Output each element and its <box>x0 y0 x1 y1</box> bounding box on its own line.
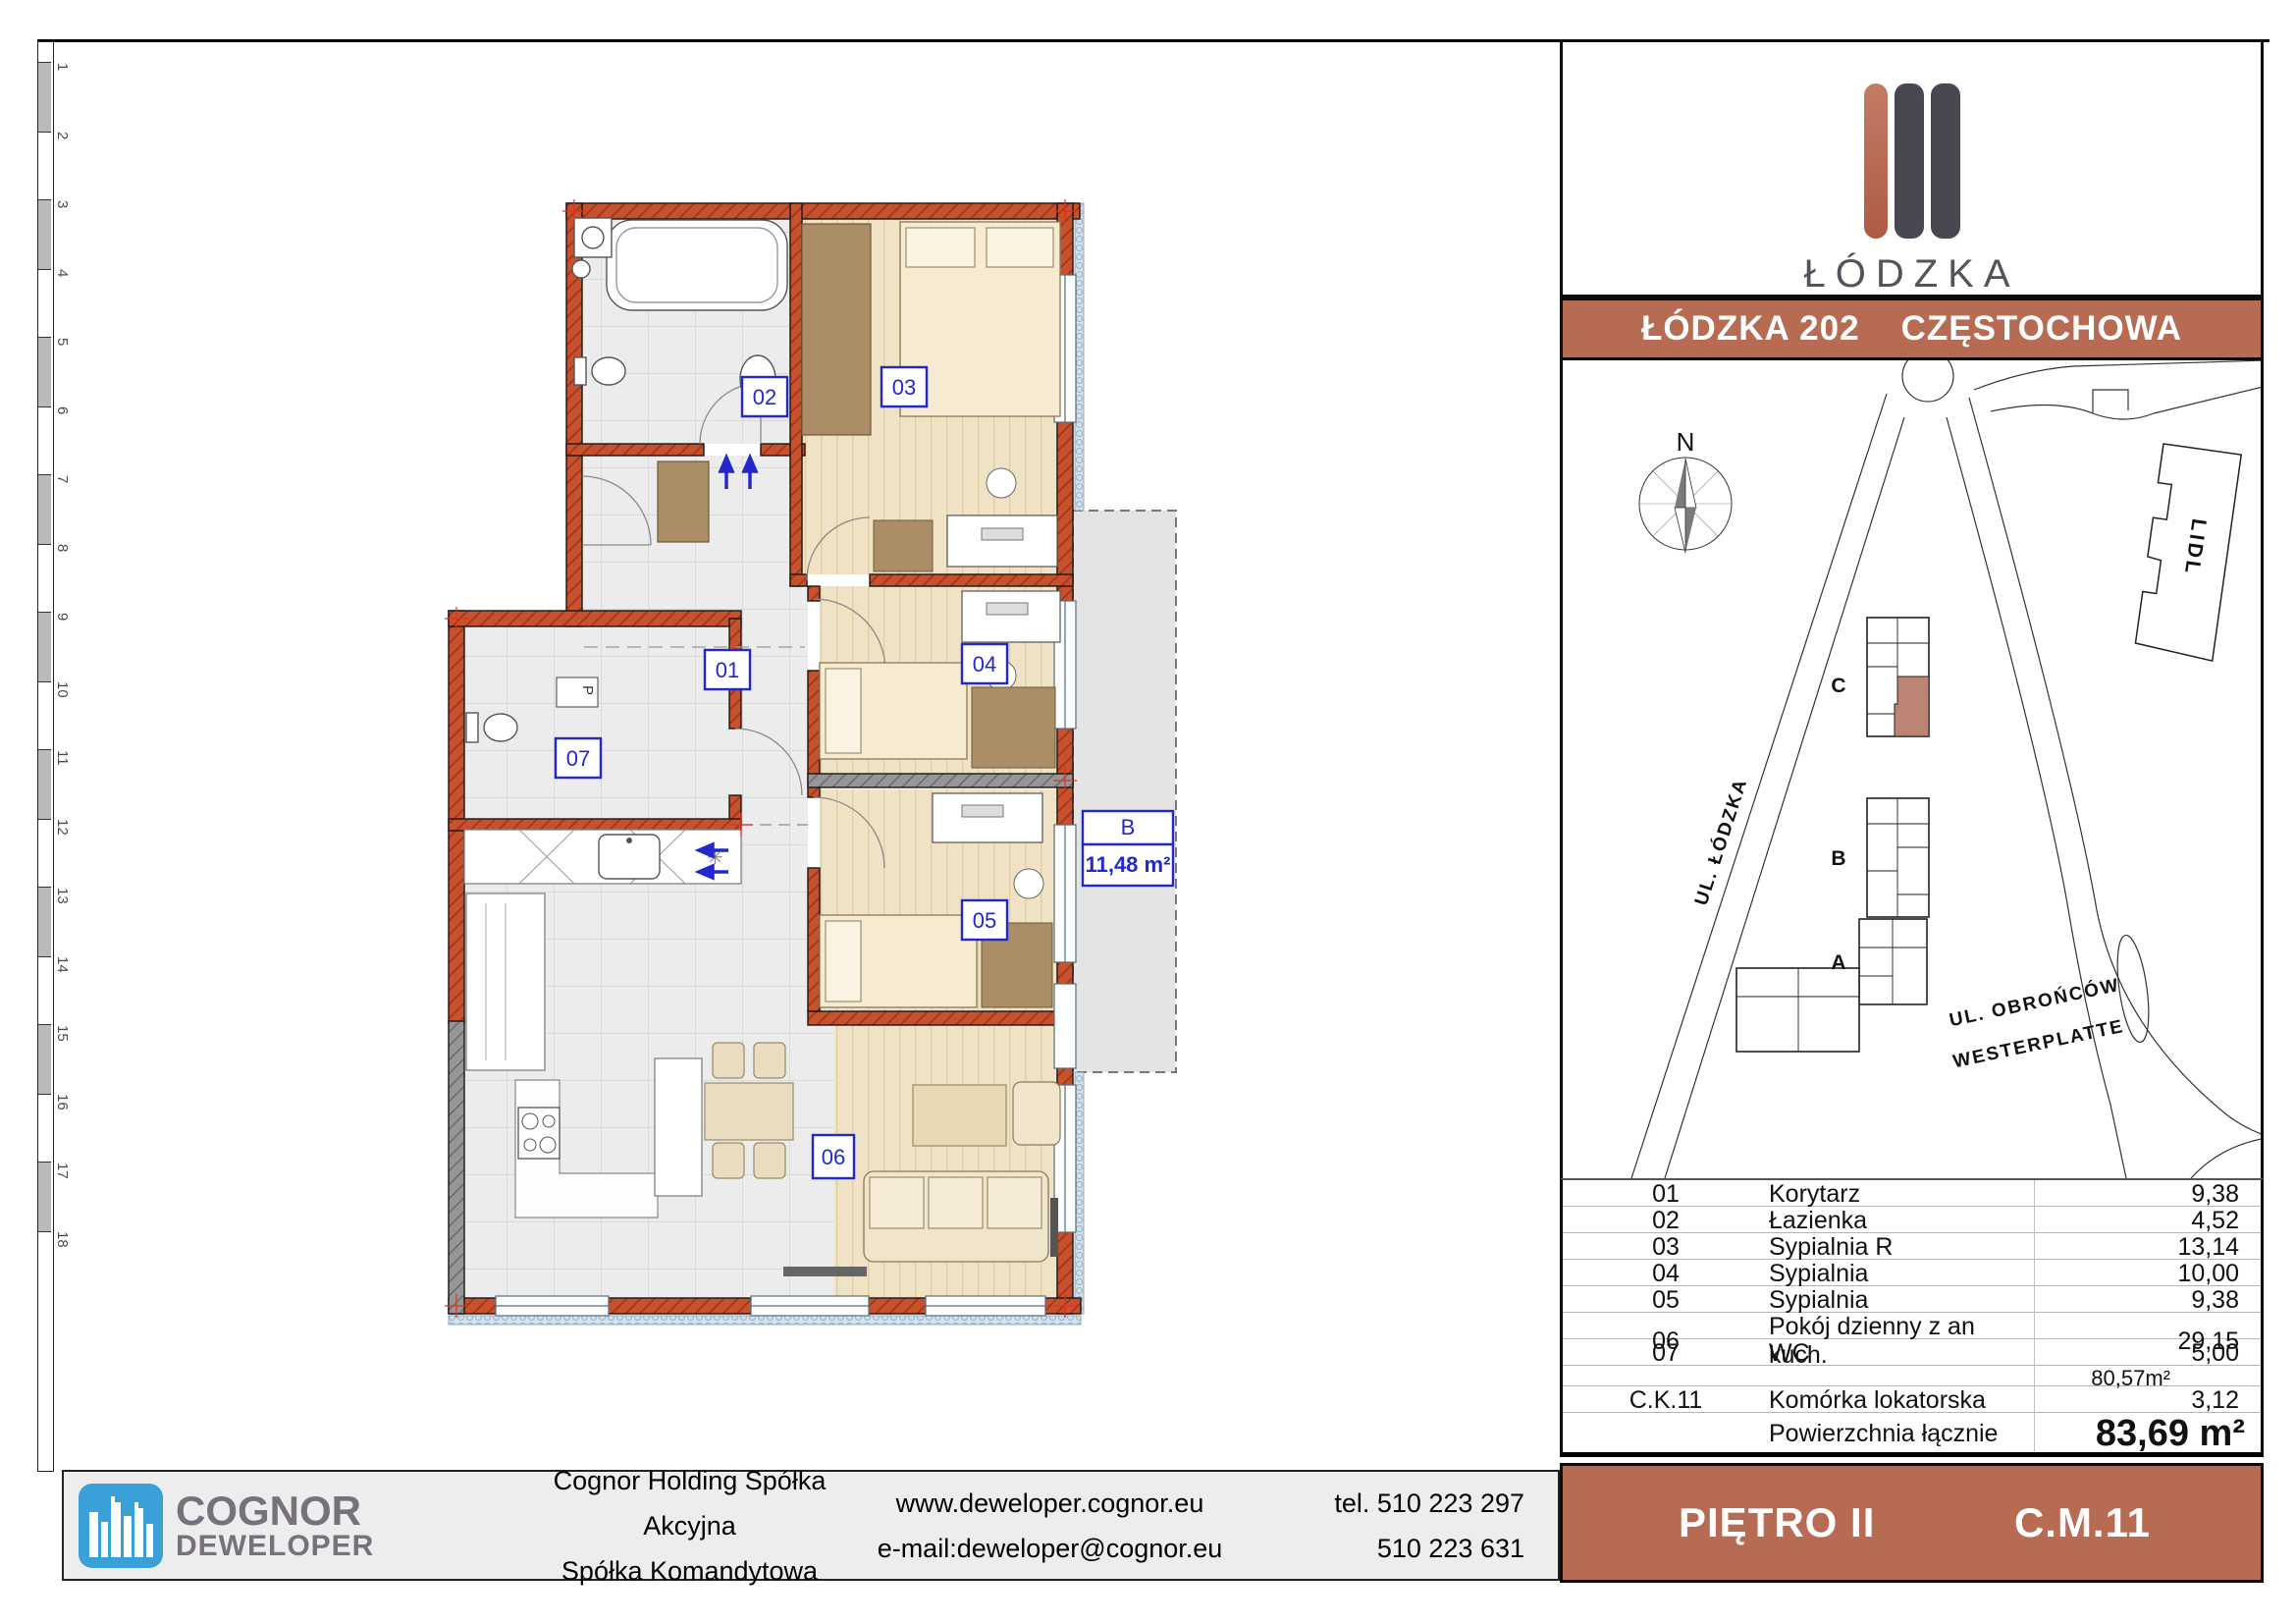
ruler-number: 15 <box>54 1025 71 1042</box>
email-link[interactable]: e-mail:deweloper@cognor.eu <box>870 1526 1230 1571</box>
ruler-segment <box>38 887 51 957</box>
table-row: 03Sypialnia R13,14 <box>1563 1233 2261 1260</box>
ruler-number: 3 <box>54 200 71 208</box>
company-line-2: Spółka Komandytowa <box>509 1548 870 1594</box>
table-cell-name: Łazienka <box>1769 1207 2034 1235</box>
table-row: 01Korytarz9,38 <box>1563 1180 2261 1207</box>
brand-name: COGNOR <box>176 1490 374 1532</box>
building-c-label: C <box>1831 675 1845 697</box>
balcony-label: B 11,48 m² <box>1083 811 1173 886</box>
shaft-marker: P <box>557 677 598 707</box>
ruler-segment <box>38 62 51 133</box>
developer-footer: COGNOR DEWELOPER Cognor Holding Spółka A… <box>62 1470 1560 1581</box>
ruler-number: 5 <box>54 338 71 346</box>
ruler-number: 10 <box>54 681 71 698</box>
phone-1: tel. 510 223 297 <box>1230 1481 1524 1526</box>
lidl-building: LIDL <box>2134 444 2241 661</box>
svg-text:06: 06 <box>822 1145 845 1169</box>
developer-estate-logo-box: ŁÓDZKA OSIEDLE <box>1560 39 2264 298</box>
table-cell-name: Sypialnia <box>1769 1260 2034 1288</box>
table-row: 04Sypialnia10,00 <box>1563 1260 2261 1286</box>
floorplan-sheet: 123456789101112131415161718 <box>0 0 2296 1624</box>
floor-unit-bar: PIĘTRO II C.M.11 <box>1560 1463 2264 1583</box>
svg-text:P: P <box>579 685 596 695</box>
ruler-segment <box>38 337 51 407</box>
ruler-number: 11 <box>54 750 71 766</box>
wc-fixtures <box>466 713 517 742</box>
ruler-number: 16 <box>54 1094 71 1110</box>
site-map-box: LIDL N <box>1560 360 2264 1178</box>
svg-text:02: 02 <box>753 385 776 409</box>
compass-icon: N <box>1639 427 1732 553</box>
room-label-02: 02 <box>742 377 787 416</box>
table-cell-no: 05 <box>1563 1286 1769 1315</box>
svg-text:03: 03 <box>892 375 916 400</box>
table-cell-no: 03 <box>1563 1233 1769 1262</box>
table-cell-area: 10,00 <box>2034 1260 2261 1288</box>
ruler-number: 18 <box>54 1231 71 1248</box>
phone-2: 510 223 631 <box>1230 1526 1524 1571</box>
unit-code-label: C.M.11 <box>2014 1499 2151 1546</box>
ruler-segment <box>38 1162 51 1232</box>
compass-north-label: N <box>1677 427 1695 457</box>
ruler-segment <box>38 1024 51 1095</box>
phone-numbers: tel. 510 223 297 510 223 631 <box>1230 1481 1558 1571</box>
cognor-brand: COGNOR DEWELOPER <box>78 1483 509 1569</box>
ruler-number: 12 <box>54 819 71 836</box>
ruler-number: 8 <box>54 544 71 552</box>
table-cell-name: WC <box>1769 1339 2034 1368</box>
room-label-01: 01 <box>705 650 750 689</box>
table-row: 06Pokój dzienny z an kuch.29,15 <box>1563 1313 2261 1339</box>
ruler-segment <box>38 474 51 545</box>
ruler-number: 6 <box>54 406 71 414</box>
table-cell-area: 9,38 <box>2034 1180 2261 1209</box>
balcony <box>1073 511 1176 1072</box>
table-cell-name: Powierzchnia łącznie <box>1769 1420 2034 1448</box>
ruler-number: 13 <box>54 888 71 904</box>
ruler-number: 1 <box>54 63 71 71</box>
table-cell-no: C.K.11 <box>1563 1386 1769 1415</box>
building-a-label: A <box>1831 951 1845 974</box>
table-cell-name: Sypialnia <box>1769 1286 2034 1315</box>
company-info: Cognor Holding Spółka Akcyjna Spółka Kom… <box>509 1458 870 1594</box>
table-cell-area: 83,69 m² <box>2034 1413 2261 1455</box>
table-cell-area: 3,12 <box>2034 1386 2261 1415</box>
table-cell-no: 01 <box>1563 1180 1769 1209</box>
svg-text:07: 07 <box>566 746 590 771</box>
estate-logo-title: ŁÓDZKA <box>1803 252 2019 297</box>
table-cell-area: 9,38 <box>2034 1286 2261 1315</box>
room-area-table: 01Korytarz9,3802Łazienka4,5203Sypialnia … <box>1560 1178 2264 1457</box>
table-cell-area: 13,14 <box>2034 1233 2261 1262</box>
table-cell-area: 4,52 <box>2034 1207 2261 1235</box>
building-b-label: B <box>1831 847 1845 870</box>
scale-ruler <box>37 41 54 1472</box>
table-row: 05Sypialnia9,38 <box>1563 1286 2261 1313</box>
website-link[interactable]: www.deweloper.cognor.eu <box>870 1481 1230 1526</box>
site-location-map: LIDL N <box>1563 360 2264 1178</box>
lodzka-osiedle-logo-icon <box>1864 83 1960 239</box>
ruler-number: 7 <box>54 475 71 483</box>
highlighted-unit <box>1895 677 1929 736</box>
ruler-number: 17 <box>54 1163 71 1179</box>
ruler-number: 4 <box>54 269 71 277</box>
table-cell-name: Sypialnia R <box>1769 1233 2034 1262</box>
room-label-03: 03 <box>881 367 927 406</box>
ruler-segment <box>38 612 51 682</box>
table-cell-no: 02 <box>1563 1207 1769 1235</box>
ruler-number: 2 <box>54 132 71 139</box>
table-row: C.K.11Komórka lokatorska3,12 <box>1563 1386 2261 1413</box>
apartment-floor-plan: ✳ <box>412 137 1276 1394</box>
contact-links: www.deweloper.cognor.eu e-mail:deweloper… <box>870 1481 1230 1571</box>
svg-text:05: 05 <box>973 908 996 933</box>
project-title-bar: ŁÓDZKA 202 CZĘSTOCHOWA <box>1560 298 2264 360</box>
project-name: ŁÓDZKA 202 <box>1641 309 1860 349</box>
svg-text:04: 04 <box>973 652 996 677</box>
company-line-1: Cognor Holding Spółka Akcyjna <box>509 1458 870 1548</box>
building-labels: C B A <box>1831 675 1845 974</box>
floor-label: PIĘTRO II <box>1679 1499 1875 1546</box>
ruler-number: 9 <box>54 613 71 621</box>
table-cell-area: 5,00 <box>2034 1339 2261 1368</box>
svg-text:01: 01 <box>716 658 739 682</box>
table-cell-name: Korytarz <box>1769 1180 2034 1209</box>
ruler-number: 14 <box>54 956 71 973</box>
project-city: CZĘSTOCHOWA <box>1901 309 2182 349</box>
table-column-divider <box>2034 1180 2035 1452</box>
brand-role: DEWELOPER <box>176 1532 374 1561</box>
table-cell-no: 04 <box>1563 1260 1769 1288</box>
room-label-05: 05 <box>962 900 1007 940</box>
ruler-segment <box>38 199 51 270</box>
room-label-04: 04 <box>962 644 1007 683</box>
table-row: 07WC5,00 <box>1563 1339 2261 1366</box>
room-label-06: 06 <box>813 1135 854 1178</box>
table-cell-no: 07 <box>1563 1339 1769 1368</box>
table-cell-name: Komórka lokatorska <box>1769 1386 2034 1415</box>
hall-cabinet <box>658 461 709 542</box>
cognor-logo-icon <box>78 1483 164 1569</box>
svg-text:B: B <box>1121 815 1136 839</box>
room-label-07: 07 <box>556 738 601 778</box>
ruler-segment <box>38 749 51 820</box>
street-lodzka-label: UL. ŁÓDZKA <box>1690 776 1752 908</box>
table-row: 02Łazienka4,52 <box>1563 1207 2261 1233</box>
table-rows: 01Korytarz9,3802Łazienka4,5203Sypialnia … <box>1563 1180 2261 1454</box>
table-row: Powierzchnia łącznie83,69 m² <box>1563 1413 2261 1454</box>
svg-text:11,48 m²: 11,48 m² <box>1086 852 1171 877</box>
